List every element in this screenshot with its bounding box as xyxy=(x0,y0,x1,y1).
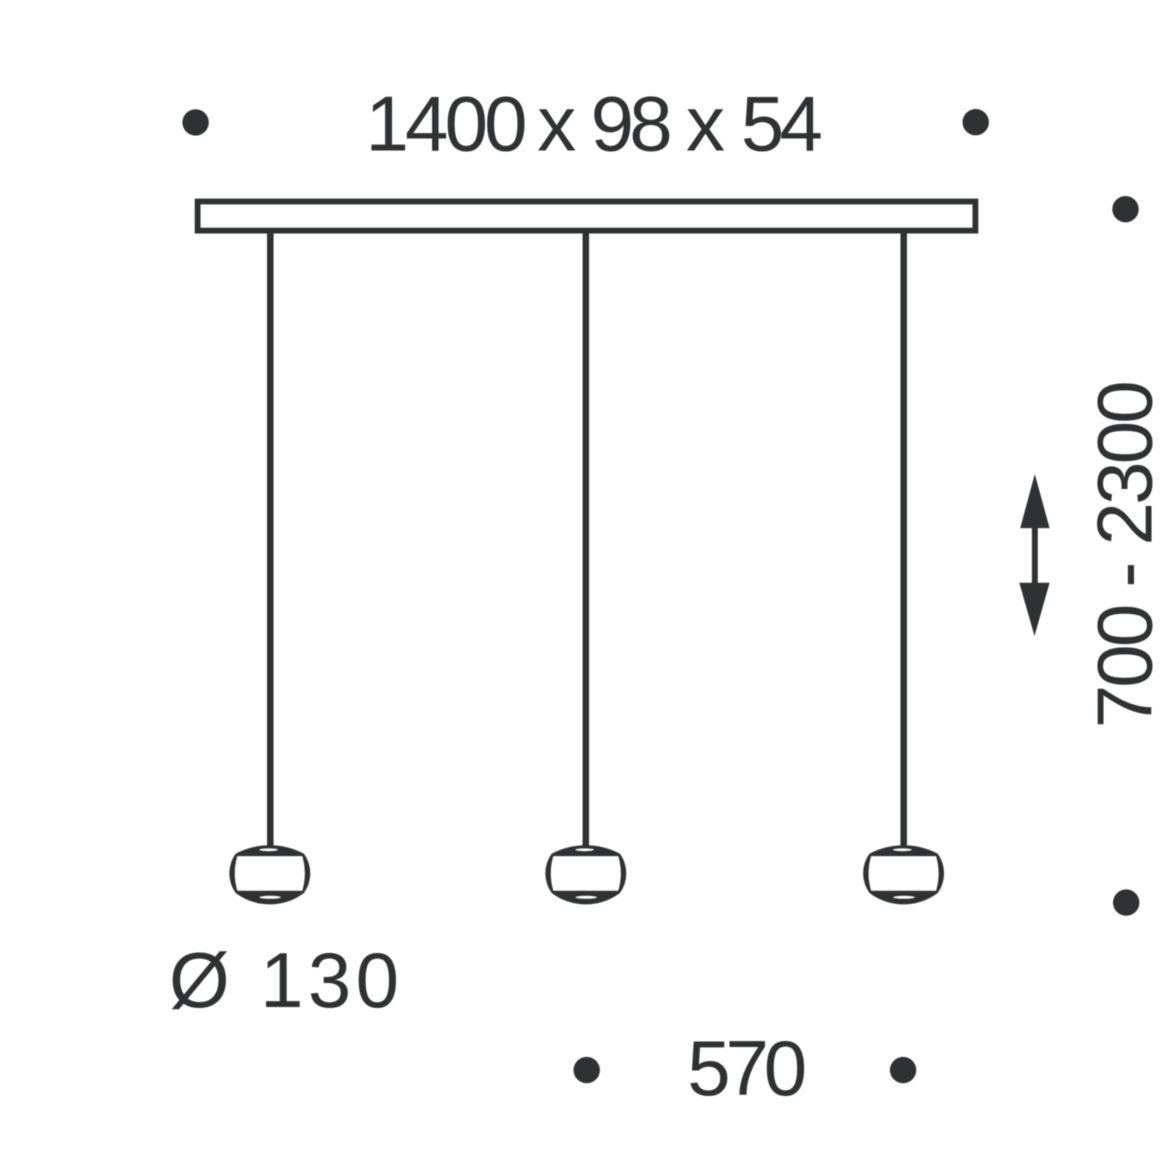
svg-text:1400x98x54: 1400x98x54 xyxy=(366,80,823,168)
svg-text:Ø 130: Ø 130 xyxy=(169,936,399,1024)
svg-text:700 - 2300: 700 - 2300 xyxy=(1081,380,1160,728)
svg-text:570: 570 xyxy=(687,1024,807,1112)
